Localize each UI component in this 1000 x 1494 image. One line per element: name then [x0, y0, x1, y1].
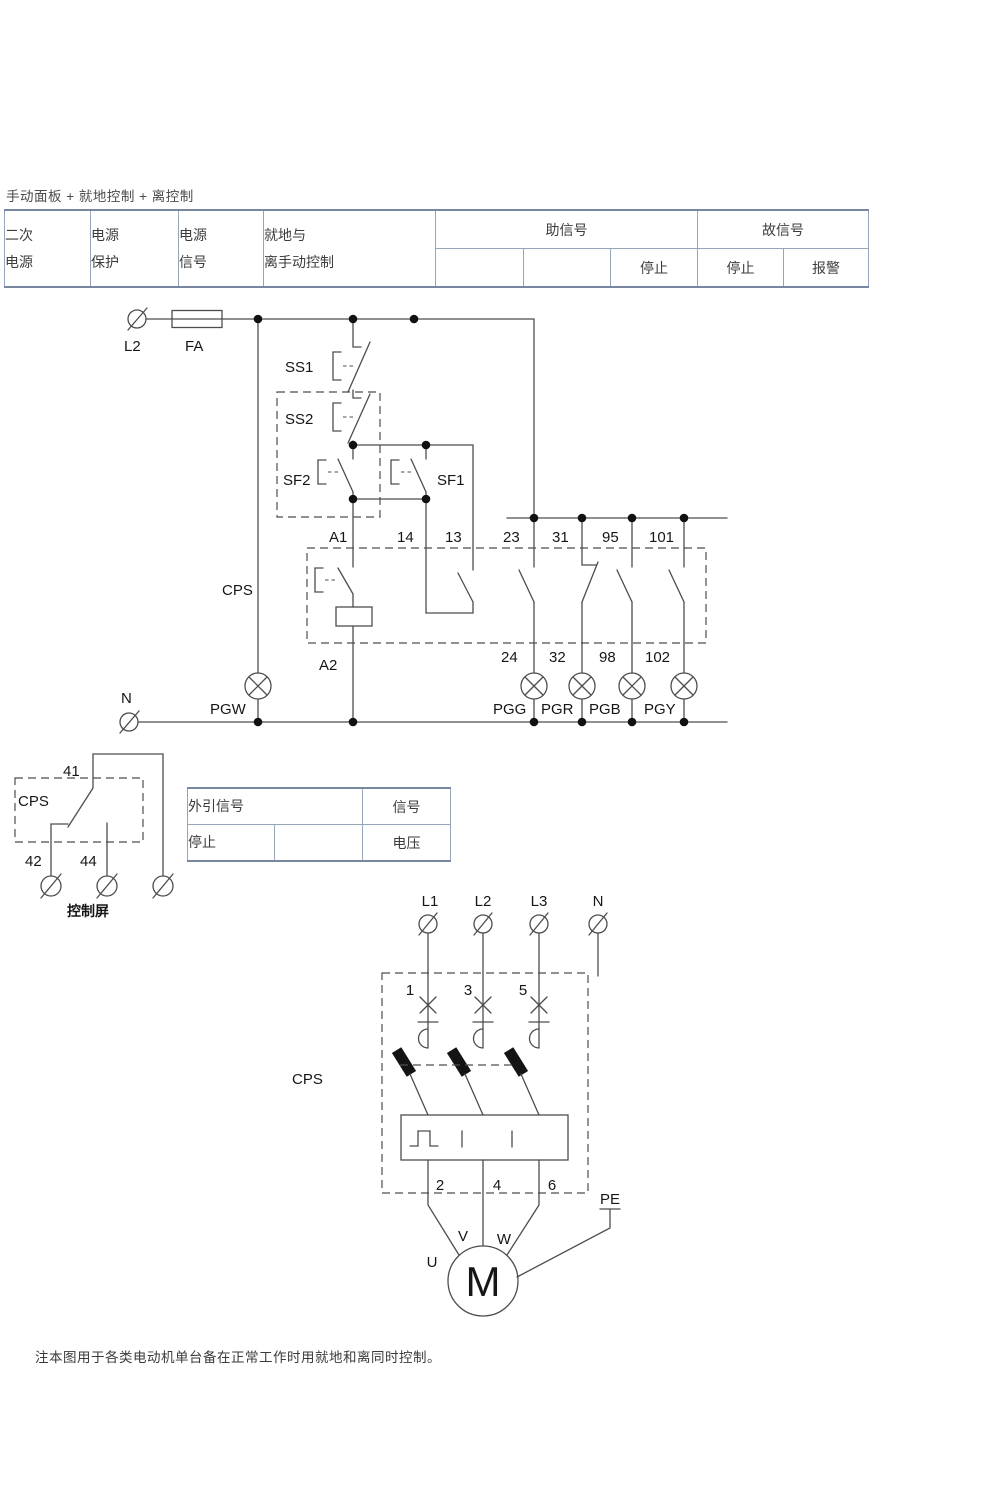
- switch-SS2-icon: [333, 390, 370, 445]
- pole-phase3-icon: [504, 933, 549, 1115]
- button-SF1-icon: [391, 445, 426, 499]
- label-t1: 1: [406, 982, 414, 999]
- label-14: 14: [397, 529, 414, 546]
- switch-SS1-icon: [333, 319, 370, 392]
- panel-feedback-circuit: 41 CPS 42 44 控制屏: [15, 754, 173, 919]
- label-U: U: [427, 1254, 438, 1271]
- label-PGW: PGW: [210, 701, 247, 718]
- pole-phase1-icon: [392, 933, 438, 1115]
- label-101: 101: [649, 529, 674, 546]
- terminal-L2-icon: [128, 308, 147, 330]
- lamp-PGB-icon: [619, 673, 645, 722]
- contact-31-32-icon: [582, 518, 598, 673]
- label-44: 44: [80, 853, 97, 870]
- terminal-N-icon: [120, 711, 139, 733]
- label-t4: 4: [493, 1177, 501, 1194]
- power-circuit: L1 L2 L3 N 1 3 5 CPS 2 4 6 PE U V W M: [292, 893, 620, 1316]
- terminal-L2-power-icon: [474, 913, 492, 935]
- label-SS2: SS2: [285, 411, 313, 428]
- seal-in-contact-13-14-icon: [426, 499, 473, 613]
- cps-coil-icon: [336, 607, 372, 626]
- cps-contact-box: [307, 548, 706, 643]
- label-PGG: PGG: [493, 701, 526, 718]
- label-CPS-power: CPS: [292, 1071, 323, 1088]
- panel-terminal-44-icon: [97, 874, 117, 898]
- lamp-PGW-icon: [245, 673, 271, 699]
- label-motor-M: M: [466, 1258, 501, 1305]
- label-PGR: PGR: [541, 701, 574, 718]
- motor-lead-U: [428, 1160, 459, 1255]
- changeover-contact-41-42-44-icon: [51, 788, 107, 876]
- label-power-L2: L2: [475, 893, 492, 910]
- pe-earth-icon: [517, 1209, 620, 1277]
- panel-top-wire: [93, 754, 163, 876]
- label-control-panel: 控制屏: [67, 903, 109, 919]
- terminal-L3-power-icon: [530, 913, 548, 935]
- label-PE: PE: [600, 1191, 620, 1208]
- button-SF2-icon: [318, 445, 353, 499]
- label-CPS-control: CPS: [222, 582, 253, 599]
- panel-terminal-42-icon: [41, 874, 61, 898]
- label-A1: A1: [329, 529, 347, 546]
- terminal-N-power-icon: [589, 913, 607, 935]
- label-41: 41: [63, 763, 80, 780]
- label-L2: L2: [124, 338, 141, 355]
- label-W: W: [497, 1231, 512, 1248]
- label-V: V: [458, 1228, 468, 1245]
- label-CPS-panel: CPS: [18, 793, 49, 810]
- label-PGY: PGY: [644, 701, 676, 718]
- top-rail: [146, 319, 534, 518]
- label-98: 98: [599, 649, 616, 666]
- pole-phase2-icon: [447, 933, 493, 1115]
- label-power-L3: L3: [531, 893, 548, 910]
- label-t5: 5: [519, 982, 527, 999]
- label-23: 23: [503, 529, 520, 546]
- motor-lead-W: [507, 1160, 539, 1255]
- trip-unit-icon: [401, 1115, 568, 1160]
- label-42: 42: [25, 853, 42, 870]
- contact-95-98-icon: [617, 518, 632, 673]
- control-circuit: L2 FA SS1 SS2 SF2 SF1 A1 14 13 23 31 95 …: [120, 308, 727, 733]
- label-N: N: [121, 690, 132, 707]
- label-PGB: PGB: [589, 701, 621, 718]
- label-102: 102: [645, 649, 670, 666]
- label-power-L1: L1: [422, 893, 439, 910]
- label-SS1: SS1: [285, 359, 313, 376]
- label-FA: FA: [185, 338, 203, 355]
- label-SF2: SF2: [283, 472, 311, 489]
- label-31: 31: [552, 529, 569, 546]
- label-13: 13: [445, 529, 462, 546]
- label-95: 95: [602, 529, 619, 546]
- label-t6: 6: [548, 1177, 556, 1194]
- label-power-N: N: [593, 893, 604, 910]
- footnote: 注本图用于各类电动机单台备在正常工作时用就地和离同时控制。: [35, 1346, 441, 1366]
- contact-23-24-icon: [519, 518, 534, 673]
- label-32: 32: [549, 649, 566, 666]
- schematic-page: 手动面板 + 就地控制 + 离控制 二次 电源 电源 保护 电源 信号 就地与 …: [0, 0, 1000, 1494]
- terminal-L1-power-icon: [419, 913, 437, 935]
- label-24: 24: [501, 649, 518, 666]
- label-t3: 3: [464, 982, 472, 999]
- schematic-canvas: L2 FA SS1 SS2 SF2 SF1 A1 14 13 23 31 95 …: [0, 0, 1000, 1494]
- panel-terminal-41-icon: [153, 874, 173, 898]
- label-A2: A2: [319, 657, 337, 674]
- label-t2: 2: [436, 1177, 444, 1194]
- label-SF1: SF1: [437, 472, 465, 489]
